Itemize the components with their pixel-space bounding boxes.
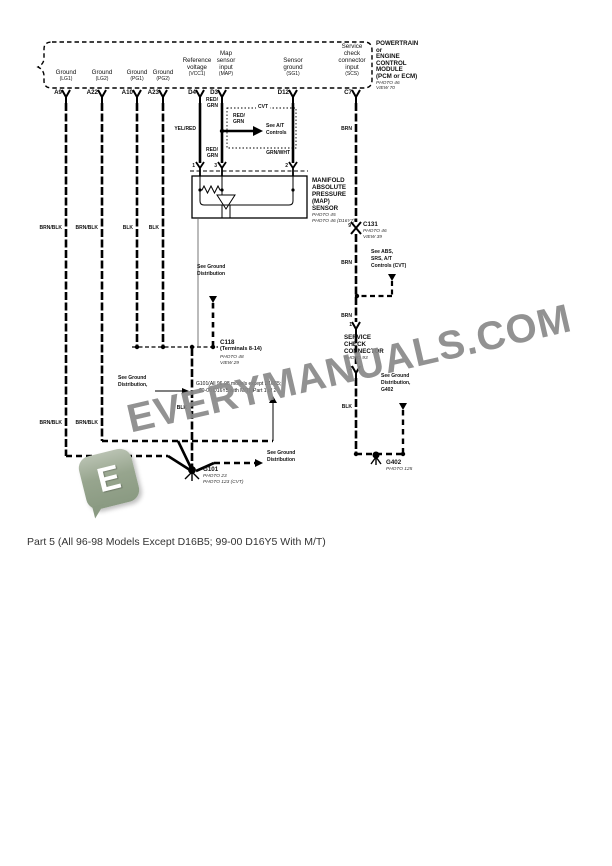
wire-color-a22: BRN/BLK xyxy=(76,226,99,231)
wiring-diagram: CVT Ground(LG1)Ground(LG2)Ground(PG1)Gro… xyxy=(0,0,612,560)
gd-left-note-1: See Ground xyxy=(118,376,146,381)
c118-ref-2: VIEW 29 xyxy=(220,361,239,366)
c118-ref-1: PHOTO 48 xyxy=(220,355,244,360)
abs-junction-dot xyxy=(355,294,359,298)
c118-bus xyxy=(132,345,218,349)
signal-a10-2: (PG1) xyxy=(130,77,143,82)
g101-note-leader xyxy=(269,396,277,441)
wire-color-d3-1b: GRN xyxy=(207,104,218,109)
wire-color-c7-3: BRN xyxy=(341,314,352,319)
g101-ref-2: PHOTO 123 (CVT) xyxy=(203,480,243,485)
c131-ref-1: PHOTO 46 xyxy=(363,229,387,234)
c118-sub: (Terminals 8-14) xyxy=(220,347,262,353)
signal-d12-3: (SG1) xyxy=(286,72,299,77)
wire-color-c7-2: BRN xyxy=(341,261,352,266)
g402-note-2: Distribution, xyxy=(381,381,410,386)
pin-label-a10: A10 xyxy=(122,90,133,97)
scc-pin-2: 2 xyxy=(349,367,352,372)
signal-a23-2: (PG2) xyxy=(156,77,169,82)
gd-top-branch xyxy=(209,296,217,347)
wire-color-a23: BLK xyxy=(149,226,159,231)
c131-pin-9: 9 xyxy=(348,224,351,229)
gd-right-arrowhead xyxy=(255,459,263,467)
pcm-title-6: (PCM or ECM) xyxy=(376,74,417,81)
wire-color-a9: BRN/BLK xyxy=(40,226,63,231)
g402-ref: PHOTO 125 xyxy=(386,467,412,472)
gd-left-leader xyxy=(155,388,189,394)
map-terminal-2: 2 xyxy=(285,164,288,169)
map-terminal-3: 3 xyxy=(214,164,217,169)
wire-color-a9-low: BRN/BLK xyxy=(40,421,63,426)
map-ref-1: PHOTO 45 xyxy=(312,213,336,218)
abs-branch xyxy=(358,281,392,296)
pcm-ref-view: VIEW 70 xyxy=(376,86,395,91)
g101-note-1: G101(All 96-98 models except D16B5; xyxy=(196,382,281,387)
gd-left-note-2: Distribution, xyxy=(118,383,147,388)
scc-label-3: CONNECTOR xyxy=(344,349,384,356)
signal-c7-5: (SCS) xyxy=(345,72,359,77)
wire-color-a10: BLK xyxy=(123,226,133,231)
wiring-diagram-svg xyxy=(0,0,612,560)
pin-label-a23: A23 xyxy=(148,90,159,97)
pin-label-d4: D4 xyxy=(188,90,196,97)
signal-d3-4: (MAP) xyxy=(219,72,233,77)
cvt-note-2: Controls xyxy=(266,131,287,136)
pcm-ref-photo: PHOTO 46 xyxy=(376,81,400,86)
signal-a9-2: (LG1) xyxy=(60,77,73,82)
pcm-title-1: POWERTRAIN xyxy=(376,41,418,48)
pin-label-d3: D3 xyxy=(210,90,218,97)
signal-a22-2: (LG2) xyxy=(96,77,109,82)
gd-right-note-2: Distribution xyxy=(267,458,295,463)
abs-note-2: SRS, A/T xyxy=(371,257,392,262)
wire-color-d4: YEL/RED xyxy=(174,127,196,132)
wire-color-a22-low: BRN/BLK xyxy=(76,421,99,426)
g402-id: G402 xyxy=(386,460,401,467)
diagram-caption: Part 5 (All 96-98 Models Except D16B5; 9… xyxy=(27,536,326,548)
g101-id: G101 xyxy=(203,467,218,474)
g101-note-2: 99-00 D16Y5 with M/T), Part 1 of 2 xyxy=(199,389,276,394)
scc-ref: PHOTO 93 xyxy=(344,356,368,361)
scc-pin-1: 1 xyxy=(349,323,352,328)
gd-top-note-1: See Ground xyxy=(197,265,225,270)
abs-arrowhead xyxy=(388,274,396,281)
gd-right-note-1: See Ground xyxy=(267,451,295,456)
pin-label-d12: D12 xyxy=(278,90,289,97)
g101-ref-1: PHOTO 23 xyxy=(203,474,227,479)
map-label-5: SENSOR xyxy=(312,206,338,213)
wire-color-c7-1: BRN xyxy=(341,127,352,132)
c131-ref-2: VIEW 39 xyxy=(363,235,382,240)
wires-bottom xyxy=(66,441,273,471)
abs-note-3: Controls (CVT) xyxy=(371,264,406,269)
wire-color-d3-2b: GRN xyxy=(207,154,218,159)
pin-label-c7: C7 xyxy=(344,90,352,97)
wire-color-main-blk: BLK xyxy=(177,406,187,411)
pin-label-a22: A22 xyxy=(87,90,98,97)
cvt-wire-color-b: GRN xyxy=(233,120,244,125)
cvt-note-1: See A/T xyxy=(266,124,284,129)
g402-branch xyxy=(354,403,407,456)
signal-d4-3: (VCC1) xyxy=(189,72,206,77)
map-sensor xyxy=(190,162,308,218)
map-terminal-1: 1 xyxy=(192,164,195,169)
wire-color-c7-4: BLK xyxy=(342,405,352,410)
manual-page: CVT Ground(LG1)Ground(LG2)Ground(PG1)Gro… xyxy=(0,0,612,866)
g402-note-3: G402 xyxy=(381,388,393,393)
pin-label-a9: A9 xyxy=(54,90,62,97)
abs-note-1: See ABS, xyxy=(371,250,393,255)
wire-color-d12: GRN/WHT xyxy=(266,151,290,156)
g402-note-1: See Ground xyxy=(381,374,409,379)
cvt-title: CVT xyxy=(256,105,270,110)
c131-id: C131 xyxy=(363,222,378,229)
gd-top-note-2: Distribution xyxy=(197,272,225,277)
cvt-box xyxy=(220,108,296,148)
